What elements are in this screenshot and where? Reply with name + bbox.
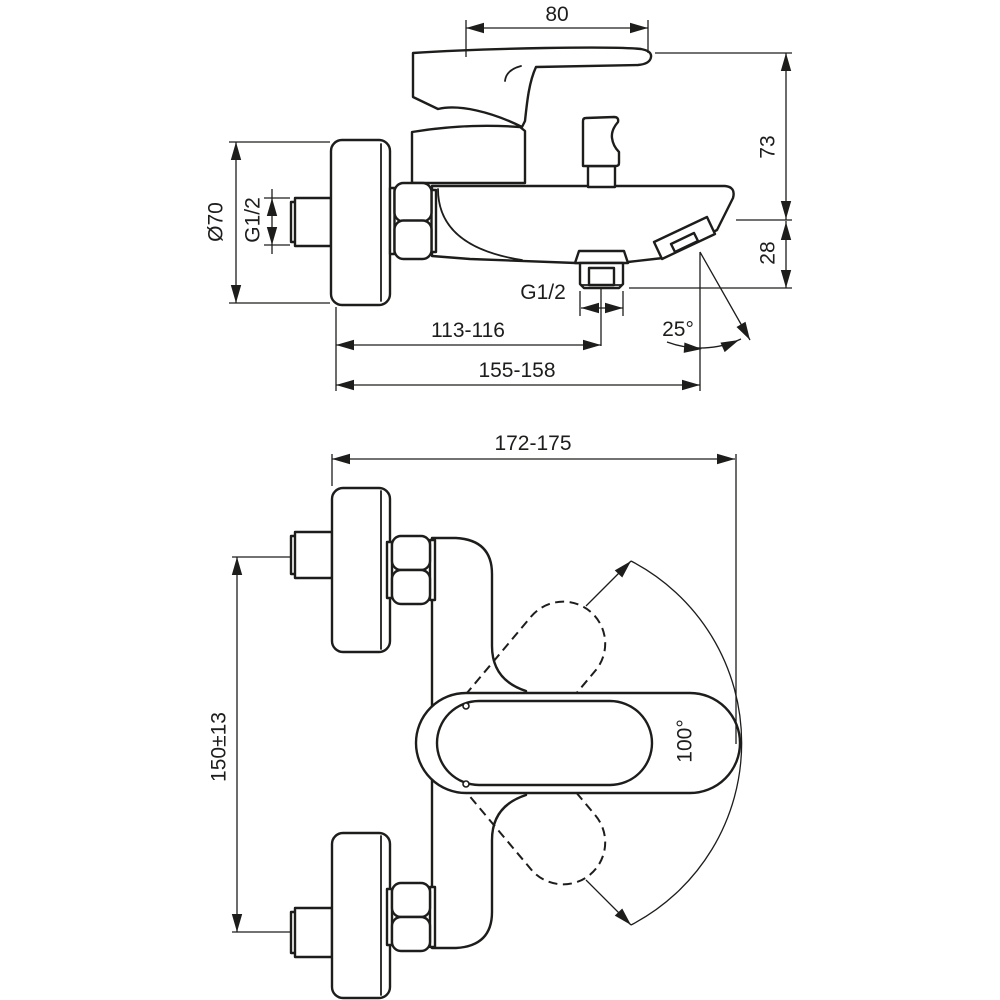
dim-label-g12-outlet: G1/2 <box>520 281 566 304</box>
handle-outline <box>413 48 651 127</box>
bath-mixer-dimension-drawing: 80 73 28 Ø70 G1/2 G1/2 <box>0 0 1000 1000</box>
dim-label-172-175: 172-175 <box>494 432 571 455</box>
diverter-knob <box>583 117 619 187</box>
handle-pin-bottom <box>463 781 469 787</box>
dim-label-73: 73 <box>757 135 780 158</box>
cartridge-housing <box>412 126 525 183</box>
union-nut-lower <box>395 221 432 260</box>
diverter-grip <box>583 117 619 166</box>
front-inlet-bottom <box>291 833 435 998</box>
dim-label-150: 150±13 <box>208 712 231 782</box>
wall-thread <box>295 198 331 246</box>
dim-label-28: 28 <box>757 241 780 264</box>
nut-top-a <box>392 536 430 570</box>
dim-label-80: 80 <box>545 3 568 26</box>
nut-bottom-b <box>392 917 430 951</box>
dim-label-25deg: 25° <box>662 318 694 341</box>
union-nut-upper <box>395 183 432 222</box>
outlet-thread-bore <box>589 268 614 285</box>
thread-top <box>295 532 332 578</box>
dim-depths: 113-116 155-158 <box>336 307 700 391</box>
dim-label-100deg: 100° <box>674 719 697 762</box>
dim-label-155-158: 155-158 <box>478 359 555 382</box>
handle-lever <box>413 48 651 127</box>
outlet-flange <box>575 251 628 263</box>
front-view: 172-175 150±13 100° <box>208 432 742 998</box>
dim-label-g12-wall: G1/2 <box>242 197 265 243</box>
dim-label-d70: Ø70 <box>205 202 228 242</box>
handle-grip <box>437 701 652 785</box>
nut-bottom-a <box>392 883 430 917</box>
handshower-outlet <box>575 251 628 288</box>
side-view: 80 73 28 Ø70 G1/2 G1/2 <box>205 3 793 391</box>
handle-pin-top <box>463 703 469 709</box>
thread-bottom <box>295 908 332 957</box>
dim-spout-angle: 25° <box>662 252 754 391</box>
dim-handshower-thread: G1/2 <box>520 281 623 346</box>
technical-drawing-canvas: 80 73 28 Ø70 G1/2 G1/2 <box>0 0 1000 1000</box>
housing-dome <box>412 126 525 183</box>
diverter-stem <box>588 166 615 187</box>
nut-top-b <box>392 570 430 604</box>
dim-label-113-116: 113-116 <box>431 319 505 342</box>
front-inlet-top <box>291 488 435 652</box>
dim-inlet-spacing: 150±13 <box>208 557 291 932</box>
